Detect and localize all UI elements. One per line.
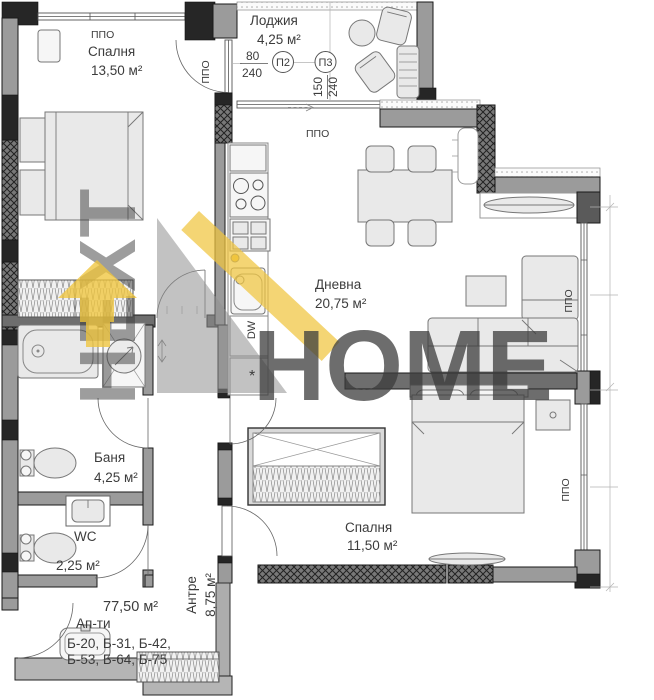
room-name-living: Дневна [315,277,362,292]
window-living-top [237,101,380,108]
room-name-bath: Баня [94,450,125,465]
room-name-bedroom2: Спалня [345,520,392,535]
star-mark: * [249,368,255,385]
door-bedroom2 [222,506,277,556]
window-label: ППО [563,289,575,312]
sink-niche [66,496,110,526]
toilet-bath [20,448,76,478]
room-area-bath: 4,25 м² [94,470,138,485]
room-area-loggia: 4,25 м² [257,32,301,47]
unit-numbers-line1: Б-20, Б-31, Б-42, [67,636,171,651]
room-area-wc: 2,25 м² [56,558,100,573]
chair [366,146,394,172]
room-area-bedroom1: 13,50 м² [91,63,143,78]
dishwasher-label: DW [246,320,258,339]
radiator-living [484,197,574,213]
p2-width: 80 [246,49,260,63]
window-bedroom2-right [581,404,587,550]
chair [366,220,394,246]
armchair [353,49,397,94]
p2-id: П2 [276,57,290,69]
wall-shelf [452,128,478,184]
total-area: 77,50 м² [103,599,158,615]
cooktop [230,173,268,217]
floor-plan: НЕХТ HOME ППО Спалня 13,50 м² Лоджия 4,2… [0,0,654,700]
lounger [397,46,419,98]
window-label: ППО [91,29,114,41]
room-name-loggia: Лоджия [250,13,298,28]
p3-width: 150 [311,77,325,97]
p2-height: 240 [242,66,262,80]
window-bedroom1-top [38,13,185,20]
round-table [349,20,375,46]
room-area-living: 20,75 м² [315,296,367,311]
window-living-right [581,223,587,371]
window-label: ППО [200,60,212,83]
floor-plan-svg: НЕХТ HOME ППО Спалня 13,50 м² Лоджия 4,2… [0,0,654,700]
unit-numbers-line2: Б-53, Б-64, Б-75 [67,652,167,667]
nightstand [20,170,45,215]
apartments-label: Ап-ти [76,616,111,631]
door-wc [95,525,148,578]
armchair [375,6,412,46]
window-label: ППО [560,478,572,501]
p3-height: 240 [326,77,340,97]
nightstand [20,118,45,162]
radiator-bedroom1 [38,30,60,62]
room-name-hall: Антре [184,576,199,614]
wall-bedroom2-bottom [258,565,446,583]
p3-id: П3 [318,57,332,69]
room-name-bedroom1: Спалня [88,44,135,59]
wall-column [477,105,495,193]
wall-loggia-top [237,2,433,10]
coffee-table [466,276,506,306]
chair [408,220,436,246]
fridge [230,145,266,171]
room-name-wc: WC [74,529,97,544]
chair [408,146,436,172]
watermark-main-text: HOME [253,310,553,422]
dining-table [358,146,452,246]
radiator-bedroom2 [429,553,505,565]
window-label: ППО [306,128,329,140]
room-area-bedroom2: 11,50 м² [347,538,398,553]
room-area-hall: 8,75 м² [203,573,218,617]
wardrobe-bedroom2 [248,428,385,505]
